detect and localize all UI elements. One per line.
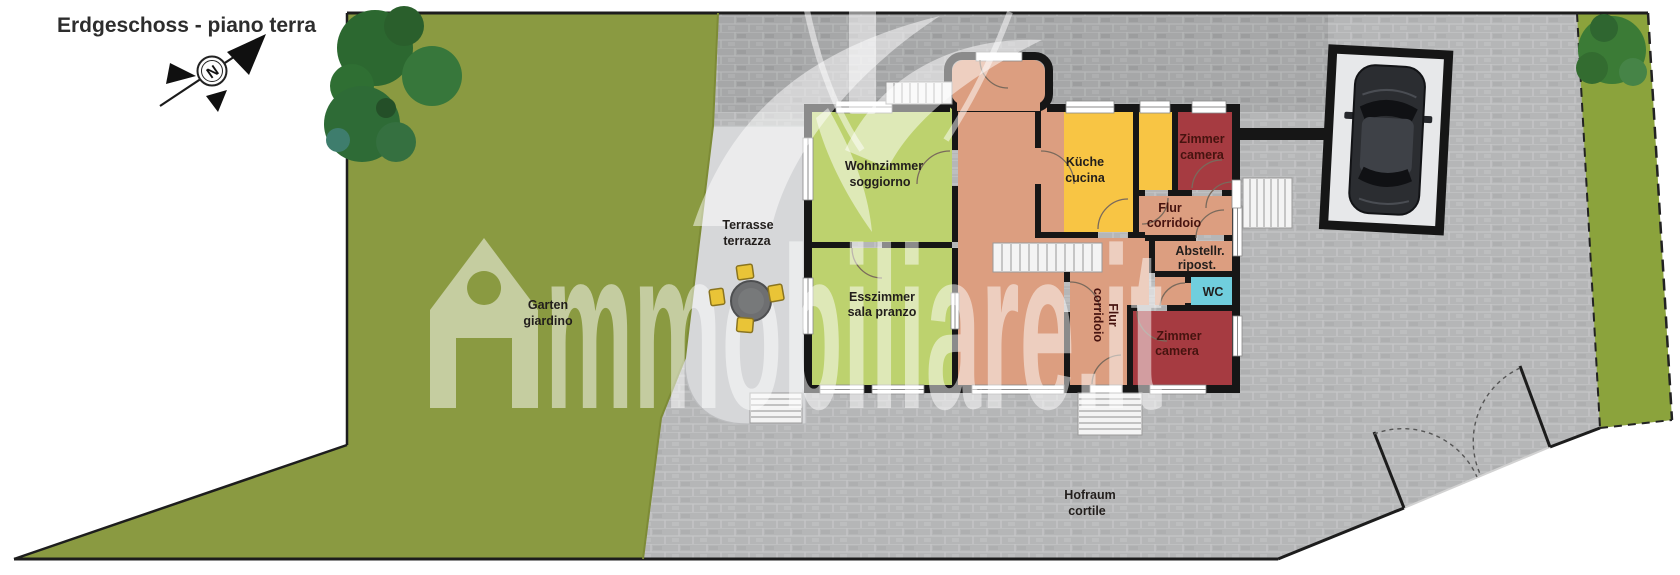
- label-wohnzimmer-line1: Wohnzimmer: [845, 159, 923, 173]
- label-terrasse-line1: Terrasse: [722, 218, 773, 232]
- compass-icon: N: [160, 34, 266, 112]
- room-pantry: [1139, 108, 1172, 190]
- label-kueche-line1: Küche: [1066, 155, 1104, 169]
- label-esszimmer-line2: sala pranzo: [848, 305, 917, 319]
- label-garten-line2: giardino: [523, 314, 573, 328]
- label-terrasse-line2: terrazza: [723, 234, 771, 248]
- exterior-stairs-right: [1243, 178, 1292, 228]
- label-esszimmer-line1: Esszimmer: [849, 290, 915, 304]
- label-flur-mid-line1: Flur: [1106, 303, 1120, 327]
- floor-plan-svg: mmobiliare.it Wohnzimmer soggiorno Küche…: [0, 0, 1680, 575]
- label-garten-line1: Garten: [528, 298, 568, 312]
- label-flur-top-line2: corridoio: [1147, 216, 1202, 230]
- page-title: Erdgeschoss - piano terra: [57, 14, 316, 37]
- garage-link-wall: [1240, 128, 1334, 140]
- floor-plan-page: mmobiliare.it Wohnzimmer soggiorno Küche…: [0, 0, 1680, 575]
- label-flur-top-line1: Flur: [1158, 201, 1182, 215]
- label-zimmer-top-line1: Zimmer: [1179, 132, 1224, 146]
- label-flur-mid-line2: corridoio: [1091, 288, 1105, 343]
- label-hofraum-line1: Hofraum: [1064, 488, 1115, 502]
- watermark-brand-text: mmobiliare.it: [545, 200, 1163, 457]
- label-wc: WC: [1203, 285, 1224, 299]
- label-wohnzimmer-line2: soggiorno: [849, 175, 910, 189]
- label-zimmer-bottom-line1: Zimmer: [1156, 329, 1201, 343]
- label-kueche-line2: cucina: [1065, 171, 1106, 185]
- label-zimmer-bottom-line2: camera: [1155, 344, 1200, 358]
- label-abstellraum-line1: Abstellr.: [1175, 244, 1224, 258]
- garage: [1324, 49, 1449, 231]
- label-hofraum-line2: cortile: [1068, 504, 1106, 518]
- exterior-door-right: [1232, 180, 1241, 208]
- label-zimmer-top-line2: camera: [1180, 148, 1225, 162]
- label-abstellraum-line2: ripost.: [1178, 258, 1216, 272]
